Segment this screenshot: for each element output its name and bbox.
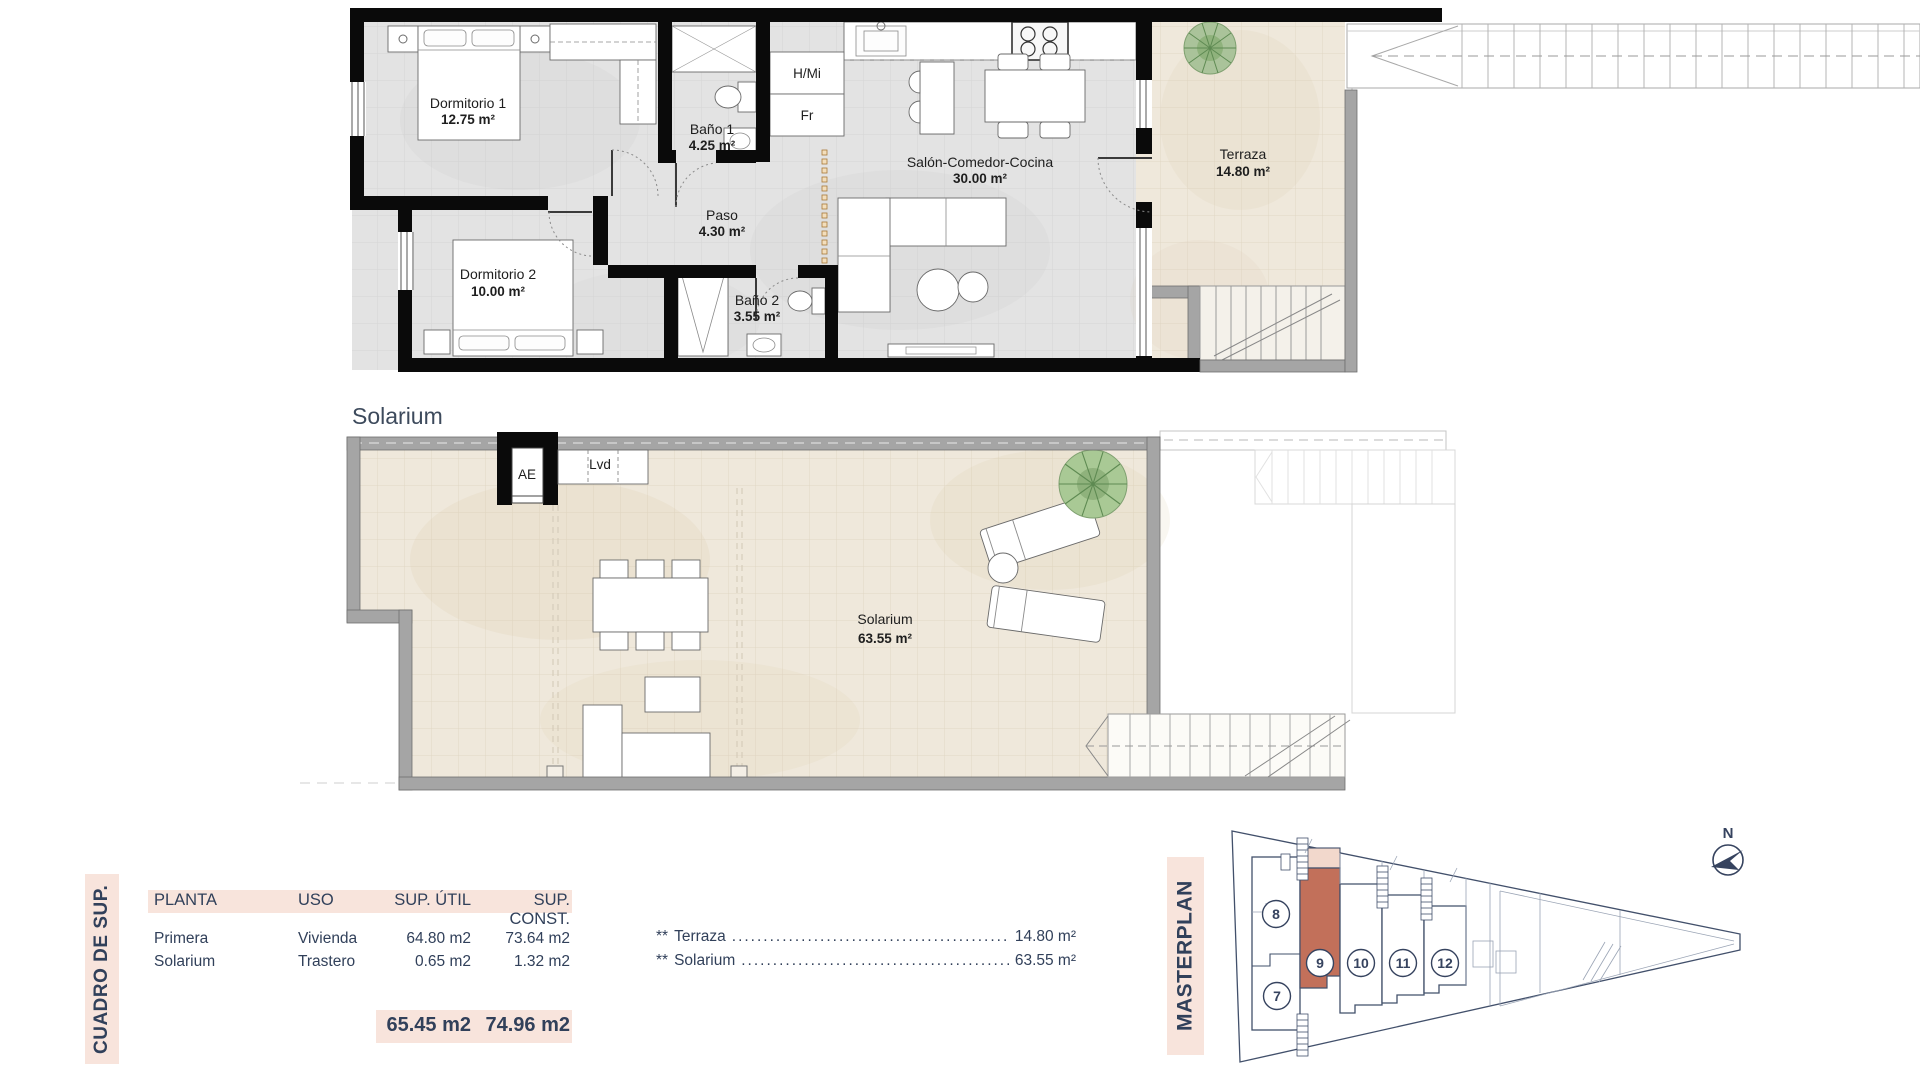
masterplan-side-title: MASTERPLAN <box>1167 857 1204 1055</box>
appliance-column <box>770 52 844 136</box>
room-label-solarium: Solarium <box>857 611 912 627</box>
room-area-terraza: 14.80 m² <box>1216 164 1271 179</box>
label-fr: Fr <box>801 108 814 123</box>
unit-label-8: 8 <box>1272 906 1280 922</box>
room-area-salon: 30.00 m² <box>953 171 1008 186</box>
shower-bano1 <box>672 26 756 72</box>
total-sup-const: 74.96 m2 <box>473 1014 570 1037</box>
room-label-bano1: Baño 1 <box>690 121 735 137</box>
room-area-dormitorio2: 10.00 m² <box>471 284 526 299</box>
access-corridor <box>1347 24 1920 332</box>
unit-10-body <box>1340 884 1382 1013</box>
annotation-solarium: ** Solarium ............................… <box>656 952 1076 976</box>
window-dormitorio2 <box>398 232 414 290</box>
cell-sup-util: 0.65 m2 <box>353 953 471 971</box>
solarium-staircase <box>1086 714 1350 777</box>
exterior-annotations: ** Terraza .............................… <box>656 928 1076 976</box>
room-label-salon: Salón-Comedor-Cocina <box>907 154 1054 170</box>
window-dormitorio1 <box>348 82 366 136</box>
cell-planta: Solarium <box>154 953 294 971</box>
total-sup-util: 65.45 m2 <box>353 1014 471 1037</box>
kitchen-counter <box>844 22 1136 60</box>
compass-icon: N <box>1711 825 1743 875</box>
upper-floor-plan: Dormitorio 1 12.75 m² Baño 1 4.25 m² Sal… <box>348 8 1920 372</box>
floorplan-sheet: Dormitorio 1 12.75 m² Baño 1 4.25 m² Sal… <box>0 0 1920 1080</box>
unit-label-12: 12 <box>1437 955 1453 971</box>
window-salon-terraza-1 <box>1136 80 1152 128</box>
room-area-paso: 4.30 m² <box>699 224 746 239</box>
sink-bano2 <box>747 334 781 356</box>
side-table <box>988 553 1018 583</box>
room-label-terraza: Terraza <box>1220 146 1267 162</box>
cell-sup-util: 64.80 m2 <box>353 930 471 948</box>
unit-label-9: 9 <box>1316 955 1324 971</box>
table-row: Solarium Trastero 0.65 m2 1.32 m2 <box>148 953 572 975</box>
room-label-dormitorio1: Dormitorio 1 <box>430 95 506 111</box>
window-salon-terraza-2 <box>1136 228 1152 356</box>
solarium-tree-icon <box>1059 450 1127 518</box>
cell-sup-const: 1.32 m2 <box>473 953 570 971</box>
annotation-value: 63.55 m² <box>1015 952 1076 970</box>
annotation-label: Terraza <box>674 928 726 946</box>
low-table <box>645 677 700 712</box>
label-hmi: H/Mi <box>793 66 821 81</box>
unit-label-7: 7 <box>1273 988 1281 1004</box>
annotation-value: 14.80 m² <box>1015 928 1076 946</box>
elevator-shaft: AE <box>497 432 558 505</box>
annotation-label: Solarium <box>674 952 735 970</box>
terrace-tree-icon <box>1184 22 1236 74</box>
unit-label-10: 10 <box>1353 955 1369 971</box>
label-lvd: Lvd <box>589 457 611 472</box>
tv-cabinet <box>888 344 994 357</box>
header-planta: PLANTA <box>154 891 294 910</box>
room-label-paso: Paso <box>706 207 738 223</box>
header-sup-const: SUP. CONST. <box>473 891 570 929</box>
masterplan: 8 7 9 10 11 12 N <box>1232 825 1743 1062</box>
room-area-solarium: 63.55 m² <box>858 631 913 646</box>
cuadro-side-title: CUADRO DE SUP. <box>85 874 119 1064</box>
table-row: Primera Vivienda 64.80 m2 73.64 m2 <box>148 930 572 952</box>
compass-n-label: N <box>1723 825 1734 842</box>
annotation-dots: ........................................… <box>741 952 1009 970</box>
room-label-bano2: Baño 2 <box>735 292 780 308</box>
room-area-bano1: 4.25 m² <box>689 138 736 153</box>
cell-sup-const: 73.64 m2 <box>473 930 570 948</box>
laundry-counter: Lvd <box>558 450 648 484</box>
room-area-dormitorio1: 12.75 m² <box>441 112 496 127</box>
header-sup-util: SUP. ÚTIL <box>353 891 471 910</box>
room-label-dormitorio2: Dormitorio 2 <box>460 266 536 282</box>
cell-planta: Primera <box>154 930 294 948</box>
annotation-prefix: ** <box>656 928 668 946</box>
annotation-terraza: ** Terraza .............................… <box>656 928 1076 952</box>
dining-table-solarium <box>593 560 708 650</box>
solarium-plan: Solarium <box>300 403 1455 790</box>
wardrobe-dormitorio2 <box>678 272 728 356</box>
surface-summary-table: PLANTA USO SUP. ÚTIL SUP. CONST. Primera… <box>148 888 1098 1073</box>
annotation-dots: ........................................… <box>732 928 1009 946</box>
room-area-bano2: 3.55 m² <box>734 309 781 324</box>
solarium-heading: Solarium <box>352 403 443 429</box>
unit-label-11: 11 <box>1396 955 1411 971</box>
annotation-prefix: ** <box>656 952 668 970</box>
label-ae: AE <box>518 467 536 482</box>
